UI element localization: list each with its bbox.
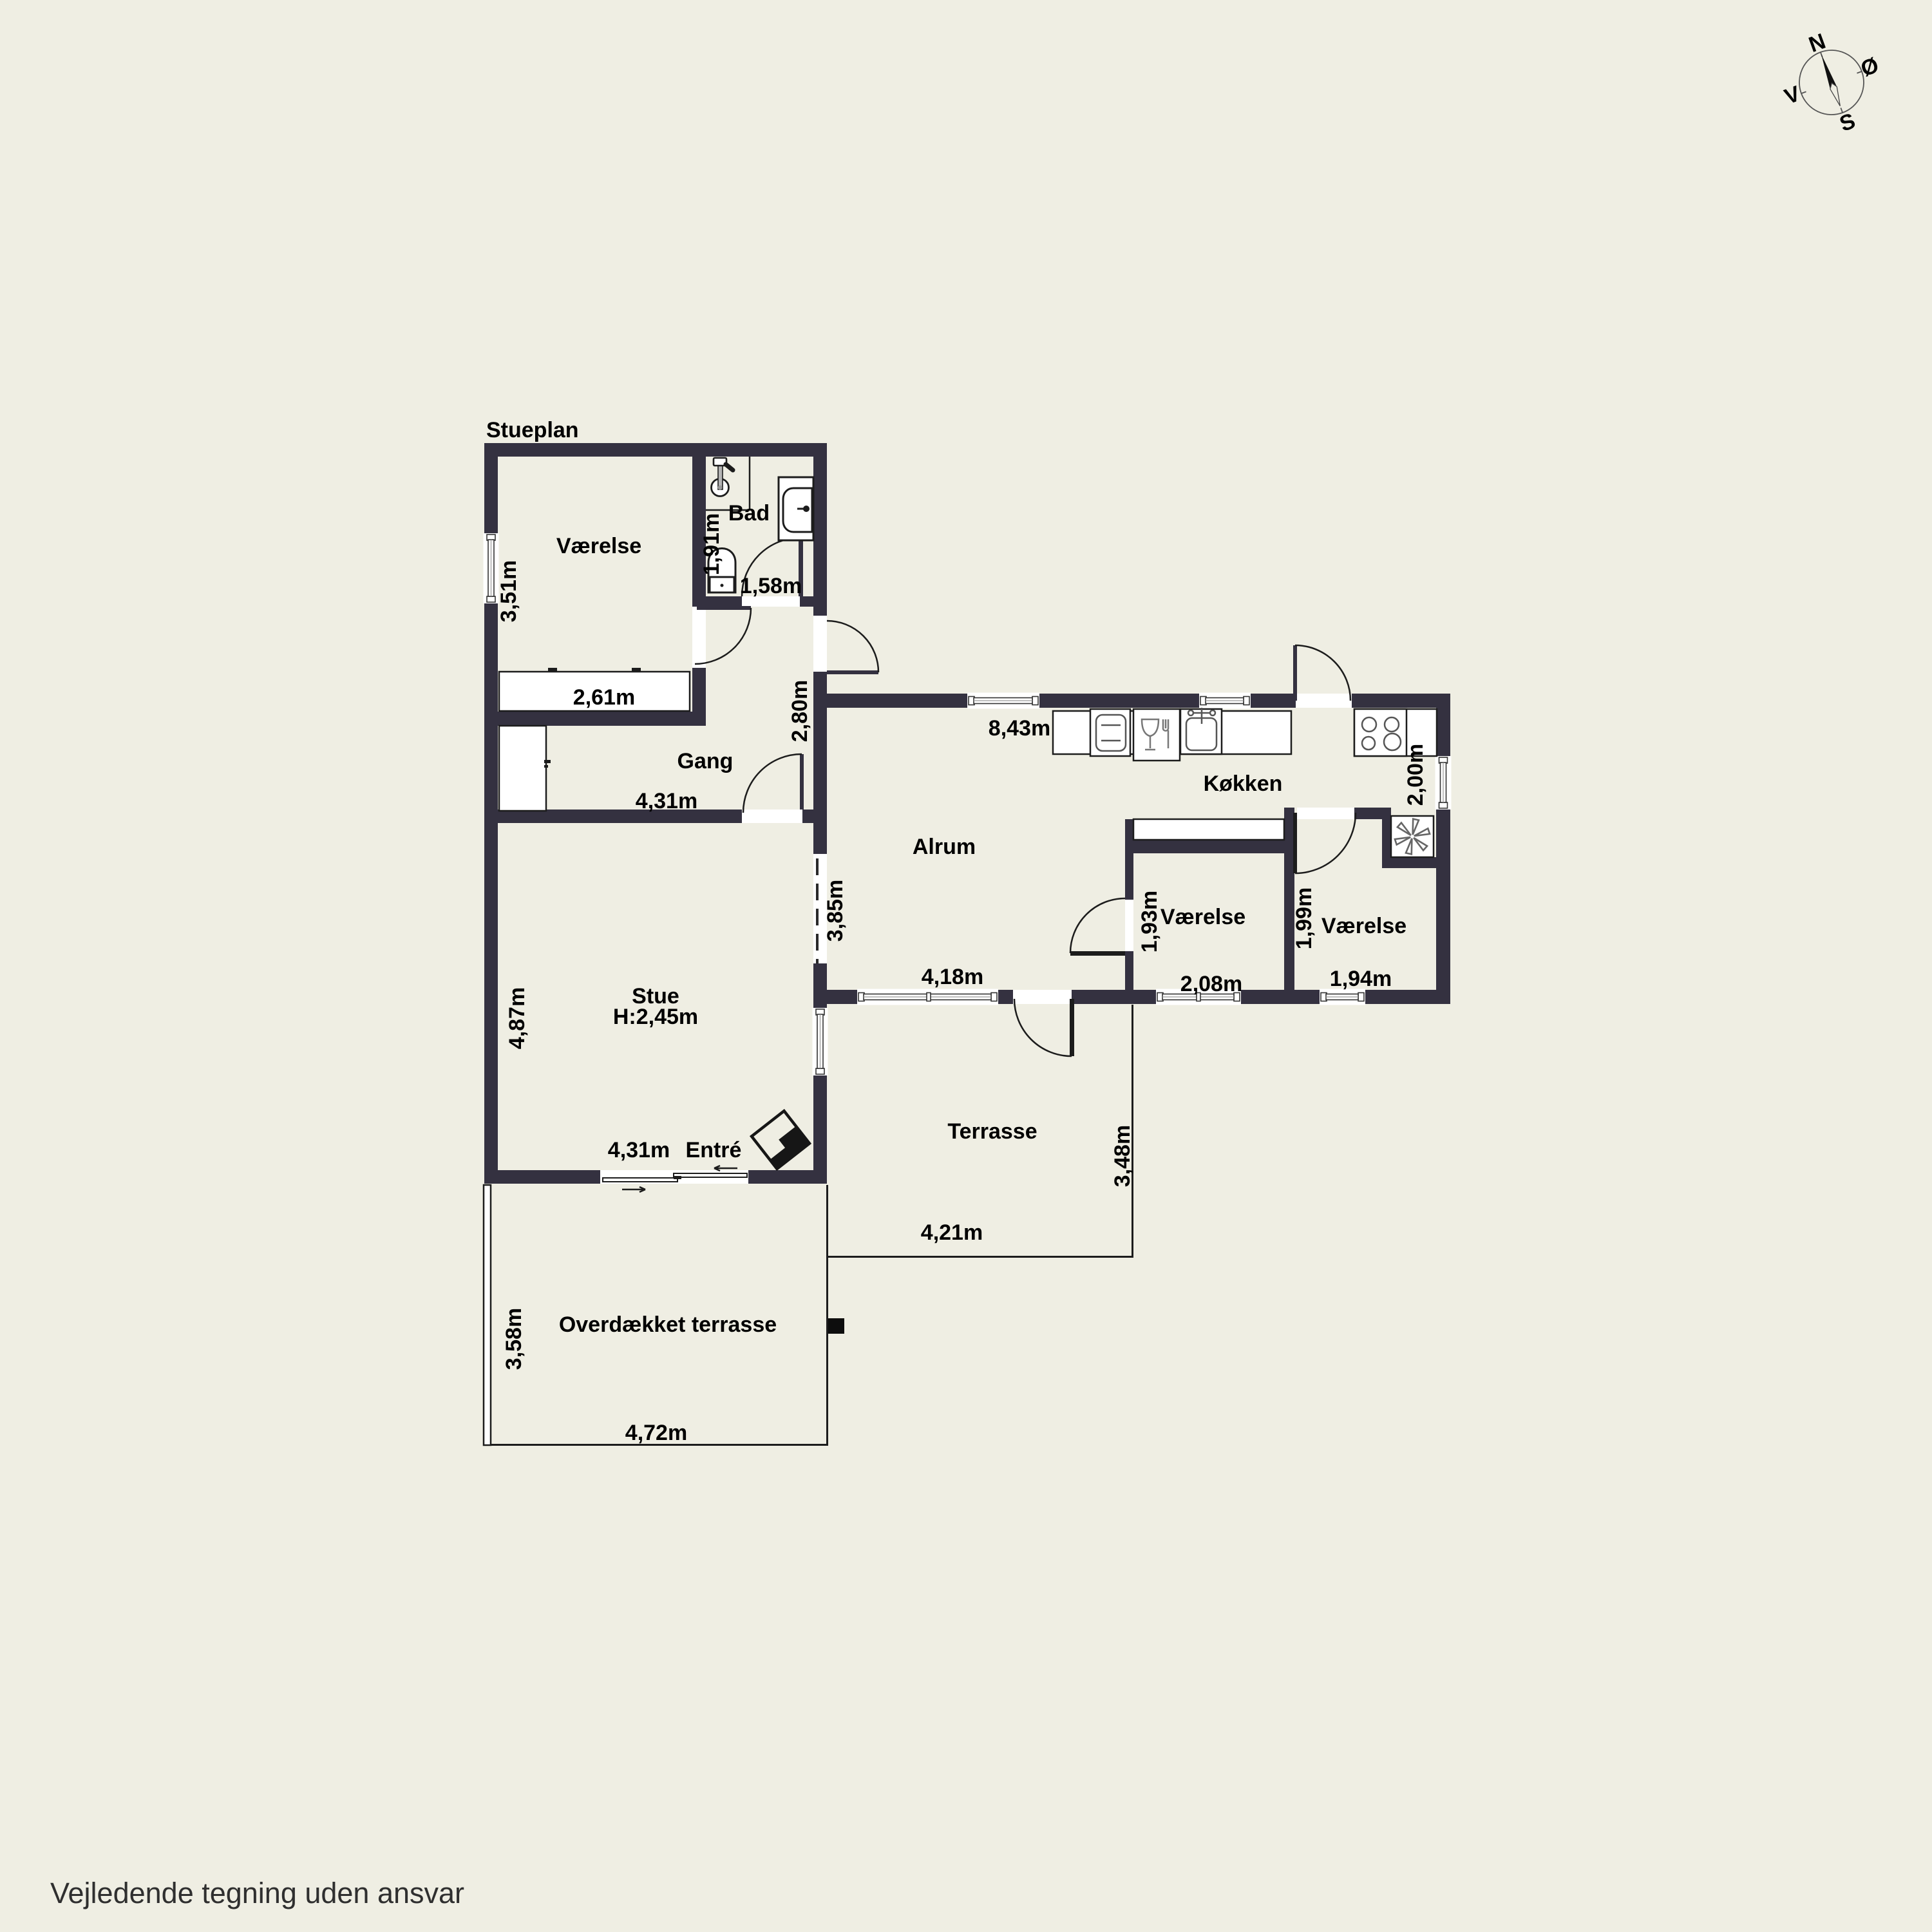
svg-text:Værelse: Værelse: [1160, 905, 1245, 929]
svg-text:4,31m: 4,31m: [636, 789, 697, 813]
svg-text:Alrum: Alrum: [913, 835, 976, 859]
svg-text:Terrasse: Terrasse: [947, 1119, 1037, 1144]
svg-text:4,18m: 4,18m: [922, 965, 983, 989]
svg-text:Køkken: Køkken: [1204, 772, 1283, 796]
svg-text:Gang: Gang: [677, 749, 734, 773]
svg-text:1,91m: 1,91m: [699, 513, 724, 575]
svg-text:4,31m: 4,31m: [608, 1138, 670, 1162]
svg-text:Stueplan: Stueplan: [486, 418, 579, 442]
svg-text:4,72m: 4,72m: [625, 1421, 687, 1445]
svg-text:2,80m: 2,80m: [788, 680, 812, 742]
svg-text:3,58m: 3,58m: [502, 1308, 526, 1370]
svg-text:Værelse: Værelse: [1321, 914, 1406, 938]
svg-text:1,58m: 1,58m: [740, 574, 802, 598]
svg-text:3,85m: 3,85m: [823, 880, 848, 942]
svg-text:Entré: Entré: [686, 1138, 742, 1162]
svg-text:8,43m: 8,43m: [989, 716, 1050, 741]
svg-text:3,48m: 3,48m: [1110, 1125, 1135, 1187]
svg-text:Overdækket terrasse: Overdækket terrasse: [559, 1312, 777, 1337]
svg-text:1,94m: 1,94m: [1330, 967, 1392, 991]
svg-text:4,87m: 4,87m: [505, 987, 529, 1049]
svg-text:H:2,45m: H:2,45m: [613, 1005, 698, 1029]
svg-text:2,08m: 2,08m: [1180, 972, 1242, 996]
svg-text:3,51m: 3,51m: [497, 560, 521, 622]
svg-text:2,00m: 2,00m: [1403, 744, 1428, 806]
svg-text:Vejledende tegning uden ansvar: Vejledende tegning uden ansvar: [50, 1877, 464, 1909]
svg-text:1,99m: 1,99m: [1292, 887, 1316, 949]
svg-text:Værelse: Værelse: [556, 534, 641, 558]
svg-text:1,93m: 1,93m: [1137, 891, 1162, 952]
svg-text:4,21m: 4,21m: [921, 1220, 983, 1245]
svg-text:Bad: Bad: [728, 501, 770, 526]
svg-text:2,61m: 2,61m: [573, 685, 635, 710]
